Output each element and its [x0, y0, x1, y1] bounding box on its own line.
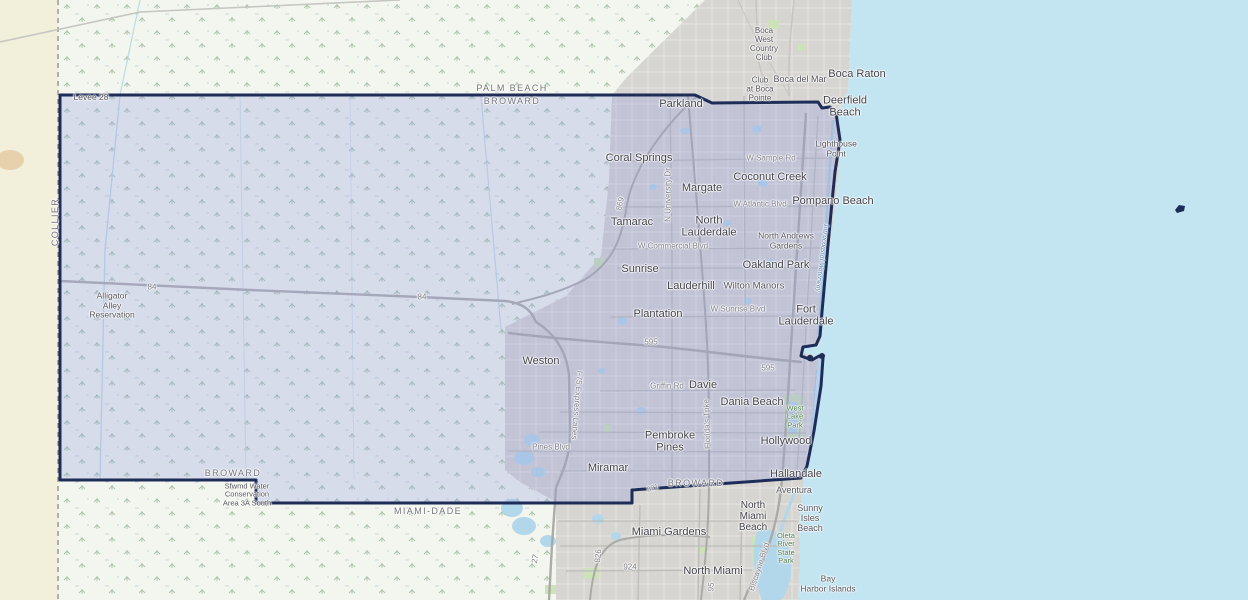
label-levee-28: Levee 28	[74, 93, 109, 103]
label-davie: Davie	[689, 379, 717, 391]
label-parkland: Parkland	[659, 98, 702, 110]
label-826: 826	[594, 549, 604, 563]
label-821: 821	[646, 483, 660, 494]
label-west-lake-park: West Lake Park	[787, 404, 804, 429]
label-broward: BROWARD	[484, 96, 540, 106]
label-north-lauderdale: North Lauderdale	[681, 215, 736, 240]
label-n-university-dr: N University Dr	[665, 168, 674, 222]
label-miramar: Miramar	[588, 462, 628, 474]
label-dania-beach: Dania Beach	[721, 396, 784, 408]
label-sunrise: Sunrise	[621, 263, 658, 275]
label-north-miami-beach: North Miami Beach	[739, 500, 767, 534]
label-fort-lauderdale: Fort Lauderdale	[778, 304, 833, 329]
label-w-sample-rd: W Sample Rd	[746, 155, 795, 164]
label-florida-s-tpke: Florida's Tpke	[703, 399, 714, 449]
label-84: 84	[148, 284, 157, 293]
label-95: 95	[707, 582, 717, 592]
label-oleta-river-state-park: Oleta River State Park	[777, 532, 795, 566]
label-pines-blvd: Pines Blvd	[532, 444, 570, 453]
label-layer: Boca RatonParklandDeerfield BeachCoral S…	[0, 0, 1248, 600]
label-924: 924	[623, 564, 636, 573]
label-sunny-isles-beach: Sunny Isles Beach	[797, 503, 823, 533]
label-hallandale: Hallandale	[770, 468, 822, 480]
label-boca-west-country-club: Boca West Country Club	[750, 27, 778, 63]
label-miami-dade: MIAMI-DADE	[394, 506, 462, 516]
label-595: 595	[761, 365, 774, 374]
label-595: 595	[644, 339, 657, 348]
label-club-at-boca-pointe: Club at Boca Pointe	[746, 77, 773, 104]
label-aventura: Aventura	[776, 485, 812, 495]
label-sfwmd-water-conservation-area-3a-south: Sfwmd Water Conservation Area 3A South	[223, 482, 271, 507]
label-intracoastal-waterway: Intracoastal Waterway	[814, 224, 831, 293]
label-plantation: Plantation	[634, 308, 683, 320]
label-wilton-manors: Wilton Manors	[724, 282, 785, 293]
label-deerfield-beach: Deerfield Beach	[823, 95, 867, 120]
label-margate: Margate	[682, 182, 722, 194]
map-canvas[interactable]: Boca RatonParklandDeerfield BeachCoral S…	[0, 0, 1248, 600]
label-coral-springs: Coral Springs	[606, 152, 673, 164]
label-i-75-express-lanes: I-75 Express Lanes	[569, 370, 584, 439]
label-w-atlantic-blvd: W Atlantic Blvd	[733, 201, 786, 210]
label-27: 27	[531, 554, 541, 564]
label-pompano-beach: Pompano Beach	[792, 195, 873, 207]
label-pembroke-pines: Pembroke Pines	[645, 430, 695, 455]
label-palm-beach: PALM BEACH	[476, 83, 547, 93]
label-oakland-park: Oakland Park	[743, 259, 810, 271]
label-84: 84	[418, 294, 427, 303]
label-lighthouse-point: Lighthouse Point	[815, 139, 857, 158]
label-broward: BROWARD	[205, 468, 261, 478]
label-lauderhill: Lauderhill	[667, 280, 715, 292]
label-hollywood: Hollywood	[761, 435, 812, 447]
label-griffin-rd: Griffin Rd	[650, 383, 684, 392]
label-869: 869	[615, 197, 627, 212]
label-w-commercial-blvd: W Commercial Blvd	[638, 243, 708, 252]
label-miami-gardens: Miami Gardens	[632, 526, 707, 538]
label-tamarac: Tamarac	[611, 216, 653, 228]
label-broward: BROWARD	[668, 478, 724, 488]
label-north-andrews-gardens: North Andrews Gardens	[758, 231, 814, 250]
label-alligator-alley-reservation: Alligator Alley Reservation	[89, 292, 134, 321]
label-north-miami: North Miami	[683, 565, 742, 577]
label-boca-del-mar: Boca del Mar	[773, 74, 826, 84]
label-collier: COLLIER	[50, 198, 60, 246]
label-bay-harbor-islands: Bay Harbor Islands	[800, 574, 855, 593]
label-weston: Weston	[522, 355, 559, 367]
label-coconut-creek: Coconut Creek	[733, 171, 806, 183]
label-w-sunrise-blvd: W Sunrise Blvd	[711, 306, 766, 315]
label-boca-raton: Boca Raton	[828, 68, 885, 80]
label-biscayne-blvd: Biscayne Blvd	[748, 542, 772, 593]
